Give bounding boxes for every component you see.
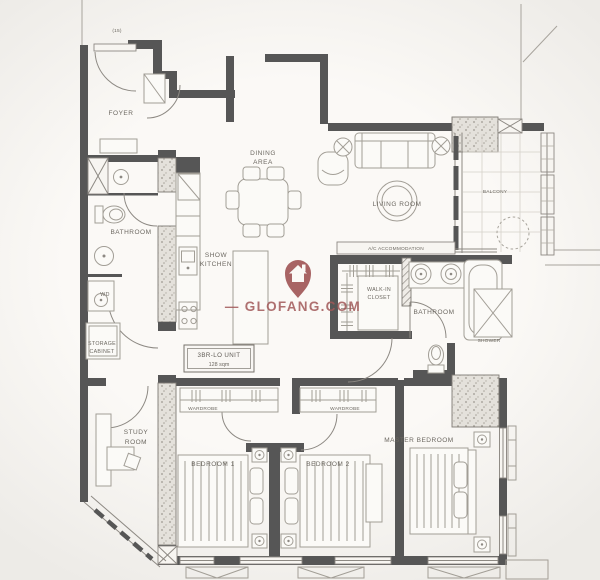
- study-furniture: [96, 414, 141, 486]
- label-storage-1: STORAGE: [88, 341, 116, 347]
- armchair: [318, 152, 348, 185]
- label-wardrobe1: WARDROBE: [188, 406, 218, 412]
- kitchen-counter: [176, 173, 200, 329]
- label-bathroom1: BATHROOM: [110, 229, 151, 236]
- label-bathroom2: BATHROOM: [413, 309, 454, 316]
- label-walkin-2: CLOSET: [368, 295, 391, 301]
- label-living-room: LIVING ROOM: [373, 201, 422, 208]
- label-storage-2: CABINET: [89, 349, 115, 355]
- label-study-2: ROOM: [125, 439, 147, 446]
- kitchen-island: [233, 251, 268, 344]
- label-wd: WD: [100, 292, 109, 298]
- label-master-bedroom: MASTER BEDROOM: [384, 437, 453, 444]
- master-bath-fixtures: [409, 260, 512, 373]
- label-dining-2: AREA: [253, 159, 273, 166]
- entry-closet: [144, 74, 165, 103]
- unit-title: 3BR-LO UNIT: [198, 352, 241, 359]
- master-bed: [410, 432, 490, 552]
- unit-area: 128 sqm: [209, 362, 230, 368]
- label-study-1: STUDY: [124, 429, 149, 436]
- label-walkin-1: WALK-IN: [367, 287, 391, 293]
- label-foyer: FOYER: [109, 110, 134, 117]
- label-entrance-note: (15): [112, 28, 122, 34]
- label-balcony: BALCONY: [483, 189, 508, 195]
- label-shower: SHOWER: [478, 338, 501, 344]
- label-kitchen-2: KITCHEN: [200, 261, 232, 268]
- label-kitchen-1: SHOW: [205, 252, 228, 259]
- label-bedroom2: BEDROOM 2: [306, 461, 350, 468]
- dining-table: [226, 167, 301, 237]
- foyer-console: [100, 139, 137, 153]
- label-ac-ledge: A/C ACCOMMODATION: [368, 246, 424, 252]
- sofa: [355, 133, 435, 168]
- watermark-text: — GLOFANG.COM: [225, 299, 361, 314]
- floor-plan-page: — GLOFANG.COM FOYER DINING AREA LIVING R…: [0, 0, 600, 580]
- label-dining-1: DINING: [250, 150, 276, 157]
- label-wardrobe2: WARDROBE: [330, 406, 360, 412]
- label-bedroom1: BEDROOM 1: [191, 461, 235, 468]
- floor-plan-svg: — GLOFANG.COM FOYER DINING AREA LIVING R…: [0, 0, 600, 580]
